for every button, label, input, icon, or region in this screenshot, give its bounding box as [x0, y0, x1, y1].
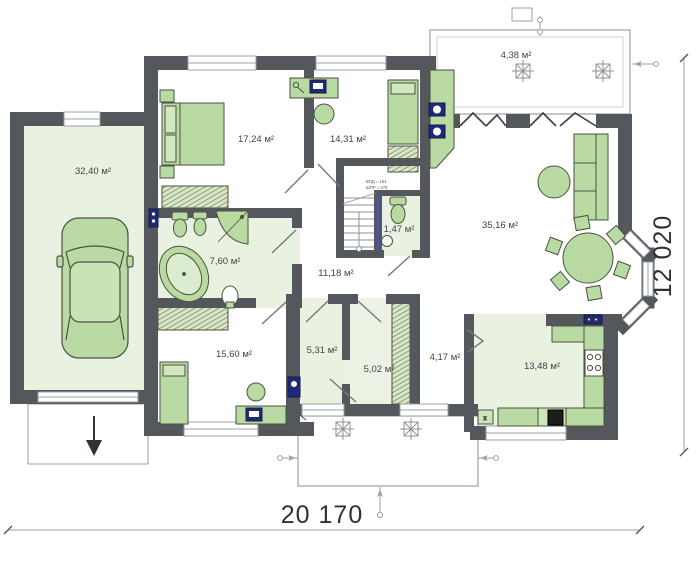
wc-area-label: 1,47 м²	[384, 224, 415, 235]
computer-screen	[313, 83, 323, 89]
terrace-area-label: 4,38 м²	[501, 50, 532, 61]
living-furniture	[538, 134, 631, 301]
wardrobe-area-label: 5,02 м²	[364, 364, 395, 375]
car	[57, 218, 133, 358]
office-chair	[314, 104, 334, 124]
bedroom1-door	[285, 170, 308, 193]
radiator-icon	[149, 209, 158, 227]
stair-note-line1: ВПД = 181	[366, 179, 387, 184]
window	[400, 404, 448, 416]
sink-pedestal	[226, 302, 234, 308]
radiator-icon	[288, 377, 300, 397]
bedroom2-closet	[158, 306, 228, 330]
pantry-cabinet	[429, 70, 454, 168]
dining-table	[563, 233, 613, 283]
toilet-tank	[390, 197, 406, 205]
washing-machine-icon	[429, 103, 445, 116]
bedroom1-closet	[162, 186, 228, 208]
bidet-bowl	[194, 219, 206, 236]
floor-plan-canvas: ВПД = 181 ШПР = 278	[0, 0, 700, 575]
pillow	[165, 135, 176, 162]
window	[188, 56, 256, 70]
living-area-label: 35,16 м²	[482, 220, 518, 231]
car-mirror	[127, 256, 133, 267]
floor-plan-page: ВПД = 181 ШПР = 278	[0, 0, 700, 575]
toilet-bowl	[174, 219, 187, 237]
garage-area-label: 32,40 м²	[75, 166, 111, 177]
wc-door	[388, 256, 410, 276]
svg-text:x: x	[484, 416, 487, 422]
nightstand	[160, 166, 174, 178]
stair-start-marker	[357, 247, 362, 252]
coffee-table	[538, 166, 570, 198]
corridor-area-label: 11,18 м²	[318, 268, 353, 279]
pouf-chair	[247, 383, 265, 401]
window	[316, 56, 386, 70]
driveway-outline	[28, 404, 148, 464]
height-dimension-label: 12 020	[649, 215, 677, 297]
kitchen-area-label: 13,48 м²	[524, 361, 560, 372]
sofa	[574, 134, 608, 220]
toilet-bowl	[391, 205, 405, 224]
bedroom1-area-label: 17,24 м²	[238, 134, 274, 145]
dimension-height: 12 020	[649, 54, 688, 456]
window	[486, 426, 566, 440]
vent-icon	[584, 315, 602, 324]
nightstand	[160, 90, 174, 102]
porch-outline	[298, 416, 478, 486]
stair-note-line2: ШПР = 278	[366, 185, 388, 190]
pillow	[163, 365, 185, 376]
small-table: x	[478, 410, 493, 424]
desk-lamp-head	[293, 82, 298, 87]
window	[302, 404, 344, 416]
bidet-tank	[193, 212, 207, 219]
car-mirror	[57, 256, 63, 267]
window	[64, 112, 100, 126]
bedroom2-furniture	[160, 362, 306, 424]
bedroom1-furniture	[160, 90, 224, 178]
terrace	[430, 8, 658, 114]
office-area-label: 14,31 м²	[330, 134, 366, 145]
washing-machine-icon	[429, 125, 445, 138]
car-roof	[70, 262, 120, 322]
bathroom-area-label: 7,60 м²	[210, 256, 241, 267]
bedroom2-area-label: 15,60 м²	[216, 349, 252, 360]
width-dimension-label: 20 170	[281, 501, 363, 529]
wc-sink	[382, 236, 393, 247]
garage-door	[38, 392, 138, 402]
dimension-width: 20 170	[4, 501, 644, 534]
utility-area-label: 5,31 м²	[307, 345, 338, 356]
pillow	[391, 83, 415, 94]
wardrobe-hanger-rail	[392, 300, 410, 404]
stove-icon	[585, 350, 603, 376]
hall-area-label: 4,17 м²	[430, 352, 461, 363]
computer-screen	[249, 411, 259, 417]
driveway	[28, 404, 148, 464]
pillow	[165, 106, 176, 133]
sink-icon	[538, 408, 566, 426]
